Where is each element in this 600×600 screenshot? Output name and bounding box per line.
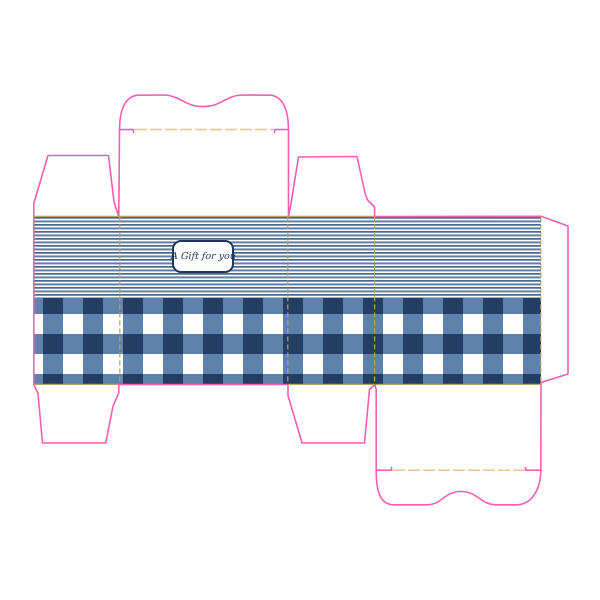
gift-label: A Gift for you — [172, 240, 234, 273]
gingham-pattern-panel — [34, 298, 541, 385]
stripes-pattern-panel — [34, 217, 541, 299]
dieline-canvas: A Gift for you — [0, 0, 600, 600]
gift-label-text: A Gift for you — [170, 251, 236, 262]
